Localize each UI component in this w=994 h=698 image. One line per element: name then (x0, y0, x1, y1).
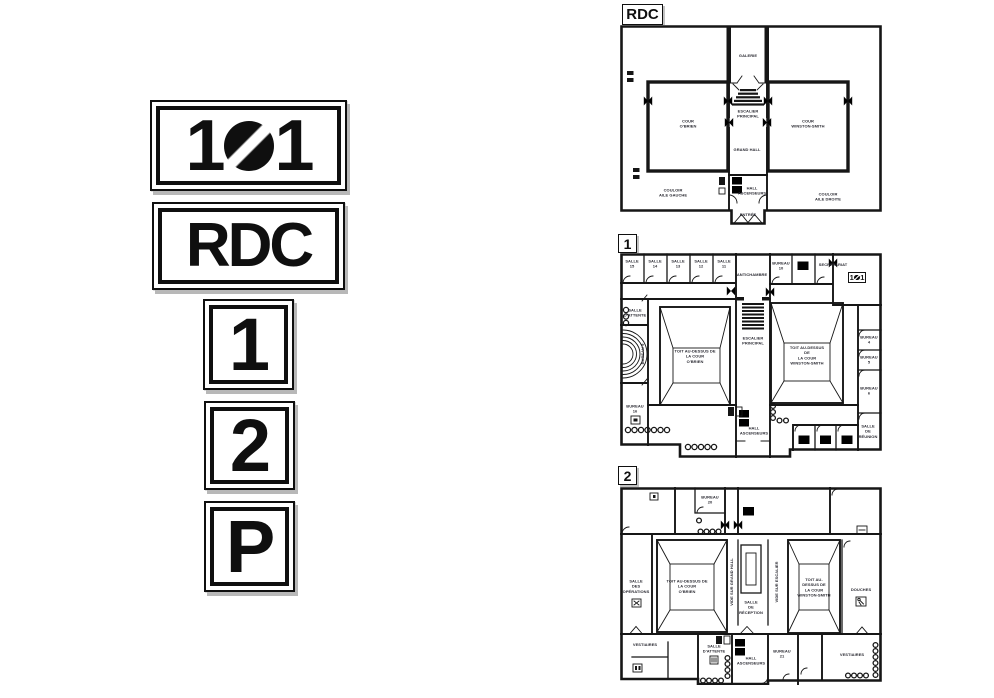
slashed-zero-icon (854, 275, 860, 281)
room-label-salle-de-reception: SALLE DE RÉCEPTION (739, 600, 763, 616)
sign-floor-1-text: 1 (209, 305, 288, 384)
room-101-label-box: 11 (848, 272, 866, 283)
floor-plan-1: SALLE 15 SALLE 14 SALLE 13 SALLE 12 SALL… (620, 253, 882, 458)
toilet-icons (743, 507, 754, 516)
room-label-toit-cour-obrien: TOIT AU-DESSUS DE LA COUR O'BRIEN (674, 349, 715, 365)
room-label-bureau-6: BUREAU 6 (860, 386, 877, 396)
sign-floor-2-text: 2 (210, 407, 289, 484)
elevator-icons (739, 410, 749, 427)
room-label-toit-cour-winston-smith: TOIT AU-DESSUS DE LA COUR WINSTON-SMITH (797, 578, 831, 599)
room-label-douches: DOUCHES (851, 587, 871, 592)
door-passage-chevron-icons (721, 521, 742, 530)
room-label-bureau-10: BUREAU 10 (772, 261, 789, 271)
room-label-escalier-principal: ESCALIER PRINCIPAL (742, 336, 764, 346)
room-label-salle-13: SALLE 13 (671, 259, 684, 269)
room-label-couloir-aile-droite: COULOIR AILE DROITE (815, 192, 841, 202)
room-label-hall-ascenseurs: HALL ASCENSEURS (738, 186, 766, 196)
room-label-cour-winston-smith: COUR WINSTON-SMITH (791, 119, 824, 129)
room-label-vestiaires-droite: VESTIAIRES (840, 652, 864, 657)
reception-table (741, 545, 761, 593)
room-label-bureau-20: BUREAU 20 (701, 495, 718, 505)
room-label-bureau-4: BUREAU 4 (860, 335, 877, 345)
room-label-vestiaires-gauche: VESTIAIRES (633, 642, 657, 647)
sign-101: 11 (150, 100, 347, 191)
room-label-vide-sur-grand-hall: VIDE SUR GRAND HALL (729, 558, 734, 605)
room-label-salle-15: SALLE 15 (625, 259, 638, 269)
radiator-icons (627, 71, 725, 194)
room-label-bureau-5: BUREAU 5 (860, 355, 877, 365)
room-label-salle-reunion: SALLE DE RÉUNION (859, 424, 878, 440)
room-label-toit-cour-obrien: TOIT AU-DESSUS DE LA COUR O'BRIEN (666, 579, 707, 595)
sign-floor-2: 2 (204, 401, 295, 490)
room-label-toit-cour-winston-smith: TOIT AU-DESSUS DE LA COUR WINSTON-SMITH (788, 346, 826, 367)
sign-floor-1: 1 (203, 299, 294, 390)
room-label-cour-obrien: COUR O'BRIEN (680, 119, 697, 129)
room-label-salle-12: SALLE 12 (694, 259, 707, 269)
room-label-salle-11: SALLE 11 (717, 259, 730, 269)
room-label-escalier-principal: ESCALIER PRINCIPAL (737, 109, 759, 119)
room-label-salle-attente: SALLE D'ATTENTE (703, 644, 725, 654)
sign-parking: P (204, 501, 295, 592)
elevator-icons (735, 639, 745, 656)
room-label-galerie: GALERIE (739, 53, 757, 58)
sign-101-digit-right: 1 (275, 110, 312, 182)
floor-plan-2: BUREAU 20 SALLE DES OPÉRATIONS TOIT AU-D… (620, 487, 882, 685)
floor-plan-rdc: GALERIE ESCALIER PRINCIPAL COUR O'BRIEN … (620, 25, 882, 225)
slashed-zero-icon (224, 121, 274, 171)
phone-icon (631, 416, 640, 424)
sign-101-text: 11 (185, 110, 311, 182)
stairs-icon (737, 297, 769, 330)
sign-101-inner: 11 (156, 106, 341, 185)
room-label-antichambre: ANTICHAMBRE (737, 272, 767, 277)
room-label-salle-14: SALLE 14 (648, 259, 661, 269)
room-label-entree: ENTRÉE (740, 212, 757, 217)
room-label-bureau-16: BUREAU 16 (626, 404, 643, 414)
room-label-bureau-21: BUREAU 21 (773, 649, 790, 659)
room-label-vide-sur-escalier: VIDE SUR ESCALIER (774, 561, 779, 602)
room-101-digit-right: 1 (860, 273, 864, 282)
plan-tag-floor-2: 2 (618, 466, 637, 485)
room-label-salle-des-operations: SALLE DES OPÉRATIONS (623, 579, 650, 595)
sign-rdc-text: RDC (158, 208, 339, 284)
document-page: 11 RDC 1 2 P RDC 1 2 (0, 0, 994, 698)
room-label-salle-attente: SALLE D'ATTENTE (624, 308, 646, 318)
room-label-hall-ascenseurs: HALL ASCENSEURS (737, 656, 765, 666)
room-label-couloir-aile-gauche: COULOIR AILE GAUCHE (659, 188, 687, 198)
room-label-bureau-9: BUREAU 9 (640, 344, 645, 365)
sign-parking-text: P (210, 507, 289, 586)
plan-tag-floor-1: 1 (618, 234, 637, 253)
shower-icon (856, 597, 866, 606)
room-101-digit-left: 1 (850, 273, 854, 282)
stairs-icon (732, 84, 764, 106)
room-label-secretariat: SECRÉTARIAT (819, 262, 847, 267)
sign-101-digit-left: 1 (185, 110, 222, 182)
room-label-grand-hall: GRAND HALL (734, 147, 761, 152)
sign-rdc: RDC (152, 202, 345, 290)
room-label-hall-ascenseurs: HALL ASCENSEURS (740, 426, 768, 436)
plan-tag-rdc: RDC (622, 4, 663, 25)
